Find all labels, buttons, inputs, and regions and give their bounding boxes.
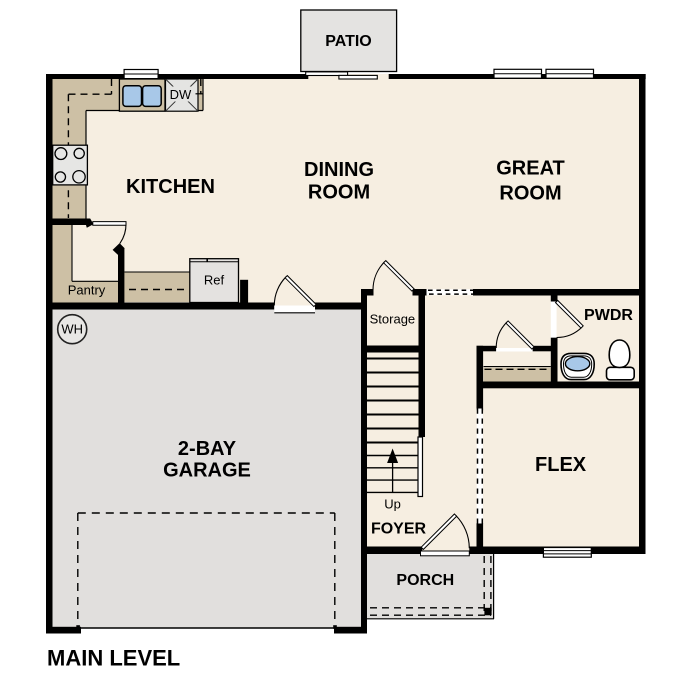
svg-text:2-BAY: 2-BAY bbox=[178, 438, 237, 460]
svg-text:Up: Up bbox=[384, 496, 401, 511]
svg-text:GARAGE: GARAGE bbox=[163, 460, 251, 482]
svg-text:PORCH: PORCH bbox=[396, 572, 454, 589]
svg-text:PATIO: PATIO bbox=[325, 33, 372, 50]
svg-text:FOYER: FOYER bbox=[371, 521, 427, 538]
svg-text:ROOM: ROOM bbox=[499, 183, 561, 205]
svg-text:MAIN LEVEL: MAIN LEVEL bbox=[47, 646, 180, 671]
svg-text:FLEX: FLEX bbox=[535, 454, 587, 476]
svg-text:Pantry: Pantry bbox=[68, 283, 106, 298]
svg-text:Storage: Storage bbox=[370, 311, 416, 326]
svg-text:GREAT: GREAT bbox=[496, 157, 565, 179]
svg-text:DW: DW bbox=[170, 87, 192, 102]
svg-text:KITCHEN: KITCHEN bbox=[126, 176, 215, 198]
svg-text:DINING: DINING bbox=[304, 159, 374, 181]
svg-text:WH: WH bbox=[61, 322, 83, 337]
svg-text:ROOM: ROOM bbox=[308, 181, 370, 203]
svg-text:Ref: Ref bbox=[204, 272, 225, 287]
svg-text:PWDR: PWDR bbox=[584, 307, 633, 324]
